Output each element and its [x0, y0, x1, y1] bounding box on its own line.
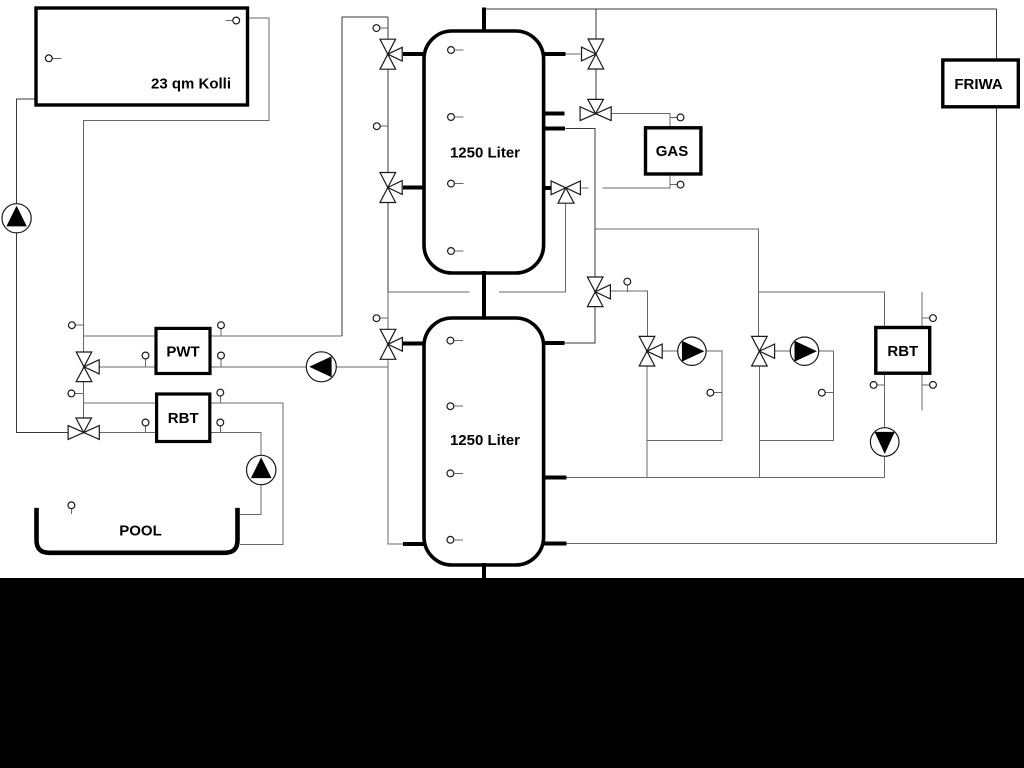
svg-text:RBT: RBT	[887, 343, 918, 360]
svg-text:FRIWA: FRIWA	[954, 76, 1002, 93]
svg-text:PWT: PWT	[166, 343, 199, 360]
svg-text:23 qm Kolli: 23 qm Kolli	[151, 75, 231, 92]
svg-text:GAS: GAS	[656, 143, 689, 160]
svg-text:1250 Liter: 1250 Liter	[450, 145, 520, 162]
svg-text:RBT: RBT	[168, 410, 199, 427]
svg-text:POOL: POOL	[119, 522, 162, 539]
svg-text:1250 Liter: 1250 Liter	[450, 432, 520, 449]
